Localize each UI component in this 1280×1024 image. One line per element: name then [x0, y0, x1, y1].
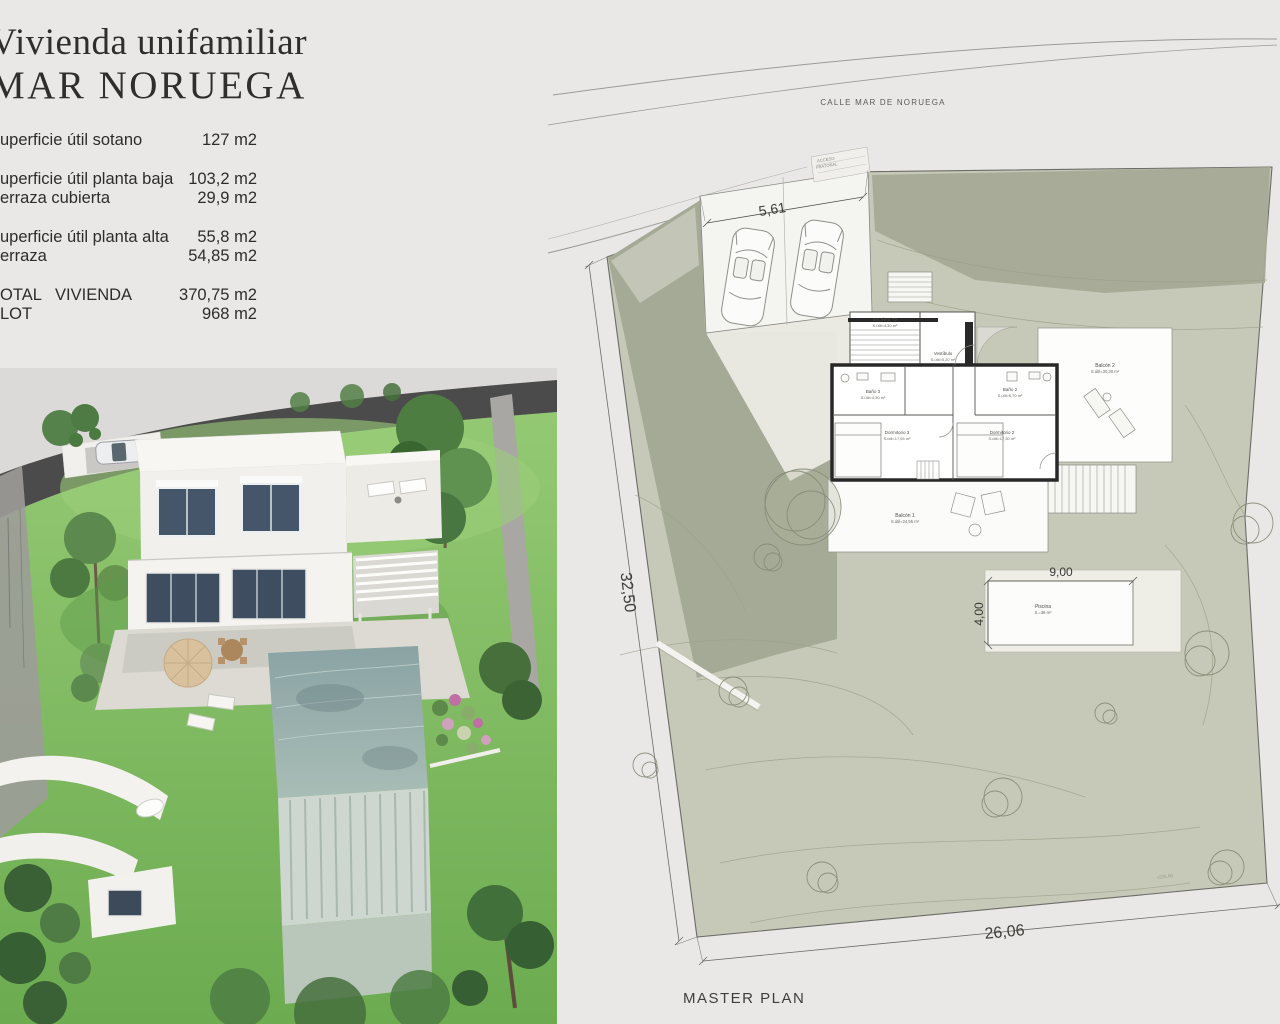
- room-area-bano2: S.útil=6,70 m²: [998, 393, 1023, 398]
- street-label: CALLE MAR DE NORUEGA: [820, 98, 945, 107]
- room-area-bano3: S.útil=4,30 m²: [861, 395, 886, 400]
- row-value: 54,85 m2: [188, 247, 257, 266]
- exterior-stairs: [888, 272, 932, 302]
- closet-hatch: [917, 461, 939, 479]
- room-area-vestibulo: S.útil=5,20 m²: [931, 357, 956, 362]
- dimension-south-label: 26,06: [984, 922, 1026, 943]
- room-label-vestibulo: Vestíbulo: [934, 351, 953, 356]
- room-label-bano2: Baño 2: [1003, 387, 1018, 392]
- room-area-dormitorio3: S.útil=17,65 m²: [883, 436, 911, 441]
- render-house: [128, 431, 442, 634]
- row-value: 29,9 m2: [197, 189, 257, 208]
- terrace-stairs: [1048, 465, 1136, 513]
- plan-caption: MASTER PLAN: [683, 990, 805, 1007]
- render-pool: [268, 646, 432, 1004]
- table-row: erraza cubierta 29,9 m2: [0, 189, 257, 208]
- table-row: LOT 968 m2: [0, 305, 257, 324]
- room-label-dormitorio2: Dormitorio 2: [990, 430, 1015, 435]
- room-area-dormitorio2: S.útil=17,30 m²: [988, 436, 1016, 441]
- row-value: 370,75 m2: [179, 286, 257, 305]
- row-label: uperficie útil planta baja: [0, 170, 173, 189]
- page-title: Vivienda unifamiliar MAR NORUEGA: [0, 22, 307, 108]
- title-line-1: Vivienda unifamiliar: [0, 22, 307, 64]
- title-line-2: MAR NORUEGA: [0, 64, 307, 108]
- house-3d-render: [0, 368, 557, 1024]
- row-value: 55,8 m2: [197, 228, 257, 247]
- dimension-pool-width-label: 9,00: [1049, 565, 1073, 579]
- dimension-west-label: 32,50: [617, 572, 639, 614]
- room-area-piscina: S.=36 m²: [1034, 610, 1052, 615]
- master-plan: CALLE MAR DE NORUEGA: [545, 25, 1280, 1015]
- room-label-bano3: Baño 3: [866, 389, 881, 394]
- presentation-page: Vivienda unifamiliar MAR NORUEGA uperfic…: [0, 0, 1280, 1024]
- room-area-balcon2: S.útil=30,30 m²: [1091, 369, 1120, 374]
- render-illustration: [0, 368, 557, 1024]
- area-table: uperficie útil sotano 127 m2 uperficie ú…: [0, 131, 257, 324]
- row-value: 103,2 m2: [188, 170, 257, 189]
- room-area-escalera: S.útil=4,30 m²: [873, 323, 898, 328]
- pool-plan: [988, 581, 1133, 645]
- pool-waterfall: [278, 788, 431, 926]
- row-label: uperficie útil sotano: [0, 131, 142, 150]
- row-label: OTAL VIVIENDA: [0, 286, 132, 305]
- table-row: uperficie útil sotano 127 m2: [0, 131, 257, 150]
- room-label-escalera: Escalera T2: [873, 317, 897, 322]
- balcony-1: [828, 478, 1048, 552]
- row-label: LOT: [0, 305, 32, 324]
- table-row: erraza 54,85 m2: [0, 247, 257, 266]
- room-area-balcon1: S.útil=24,55 m²: [891, 519, 920, 524]
- row-label: uperficie útil planta alta: [0, 228, 169, 247]
- table-row: uperficie útil planta alta 55,8 m2: [0, 228, 257, 247]
- dimension-pool-height-label: 4,00: [972, 602, 986, 626]
- row-label: erraza cubierta: [0, 189, 110, 208]
- table-row: uperficie útil planta baja 103,2 m2: [0, 170, 257, 189]
- row-value: 968 m2: [202, 305, 257, 324]
- master-plan-drawing: CALLE MAR DE NORUEGA: [545, 25, 1280, 1015]
- room-label-dormitorio3: Dormitorio 3: [885, 430, 910, 435]
- row-value: 127 m2: [202, 131, 257, 150]
- tree-plan: [765, 469, 841, 545]
- table-row: OTAL VIVIENDA 370,75 m2: [0, 286, 257, 305]
- row-label: erraza: [0, 247, 47, 266]
